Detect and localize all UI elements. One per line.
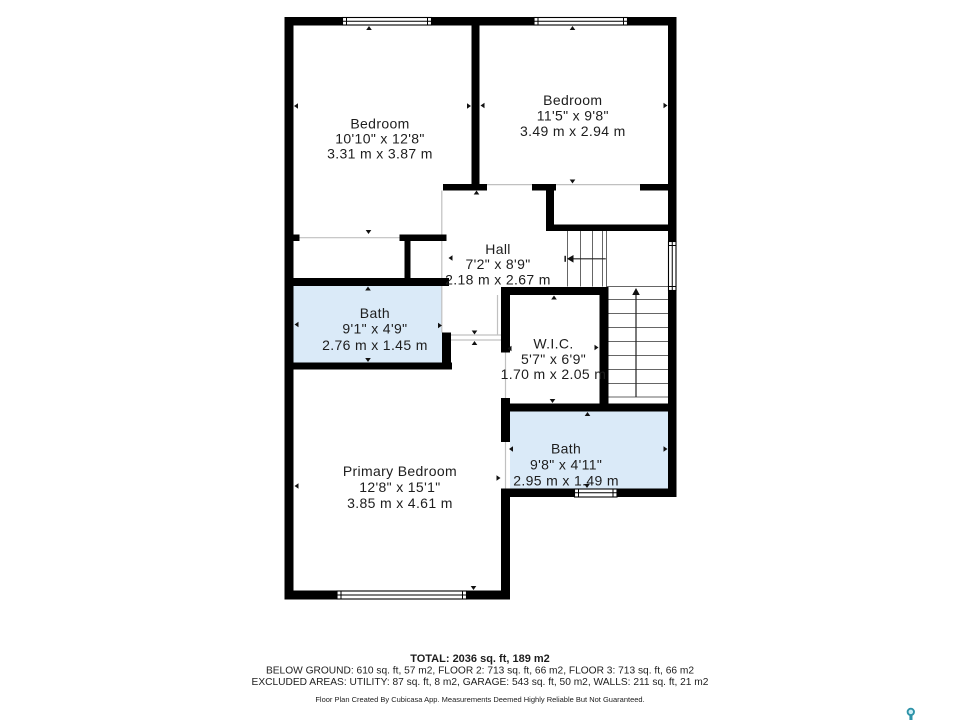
svg-text:2.76 m x 1.45 m: 2.76 m x 1.45 m xyxy=(322,337,428,353)
svg-text:11'5" x 9'8": 11'5" x 9'8" xyxy=(537,108,609,124)
svg-text:1.70 m x 2.05 m: 1.70 m x 2.05 m xyxy=(501,366,607,382)
svg-text:Hall: Hall xyxy=(485,241,511,257)
svg-text:Primary Bedroom: Primary Bedroom xyxy=(343,463,457,479)
svg-text:Floor Plan Created By Cubicasa: Floor Plan Created By Cubicasa App. Meas… xyxy=(315,695,644,704)
svg-text:9'8" x 4'11": 9'8" x 4'11" xyxy=(530,457,602,473)
svg-text:3.31 m x 3.87 m: 3.31 m x 3.87 m xyxy=(327,146,433,162)
svg-text:2.95 m x 1.49 m: 2.95 m x 1.49 m xyxy=(513,473,619,489)
svg-text:10'10" x 12'8": 10'10" x 12'8" xyxy=(335,131,424,147)
svg-text:3.49 m x 2.94 m: 3.49 m x 2.94 m xyxy=(520,123,626,139)
svg-text:Bath: Bath xyxy=(551,441,581,457)
svg-text:Bedroom: Bedroom xyxy=(350,116,409,132)
svg-text:7'2" x 8'9": 7'2" x 8'9" xyxy=(465,256,530,272)
svg-text:12'8" x 15'1": 12'8" x 15'1" xyxy=(359,479,440,495)
svg-text:W.I.C.: W.I.C. xyxy=(533,336,573,352)
svg-text:BELOW GROUND: 610 sq. ft, 57 m: BELOW GROUND: 610 sq. ft, 57 m2, FLOOR 2… xyxy=(266,666,694,677)
svg-text:3.85 m x 4.61 m: 3.85 m x 4.61 m xyxy=(347,495,453,511)
svg-text:EXCLUDED AREAS: UTILITY: 87 sq: EXCLUDED AREAS: UTILITY: 87 sq. ft, 8 m2… xyxy=(252,677,709,688)
svg-text:9'1" x 4'9": 9'1" x 4'9" xyxy=(342,321,407,337)
svg-text:5'7" x 6'9": 5'7" x 6'9" xyxy=(521,351,586,367)
svg-text:Bath: Bath xyxy=(360,305,390,321)
svg-text:TOTAL: 2036 sq. ft, 189 m2: TOTAL: 2036 sq. ft, 189 m2 xyxy=(410,653,550,665)
svg-text:2.18 m x 2.67 m: 2.18 m x 2.67 m xyxy=(445,272,551,288)
svg-text:Bedroom: Bedroom xyxy=(543,92,602,108)
